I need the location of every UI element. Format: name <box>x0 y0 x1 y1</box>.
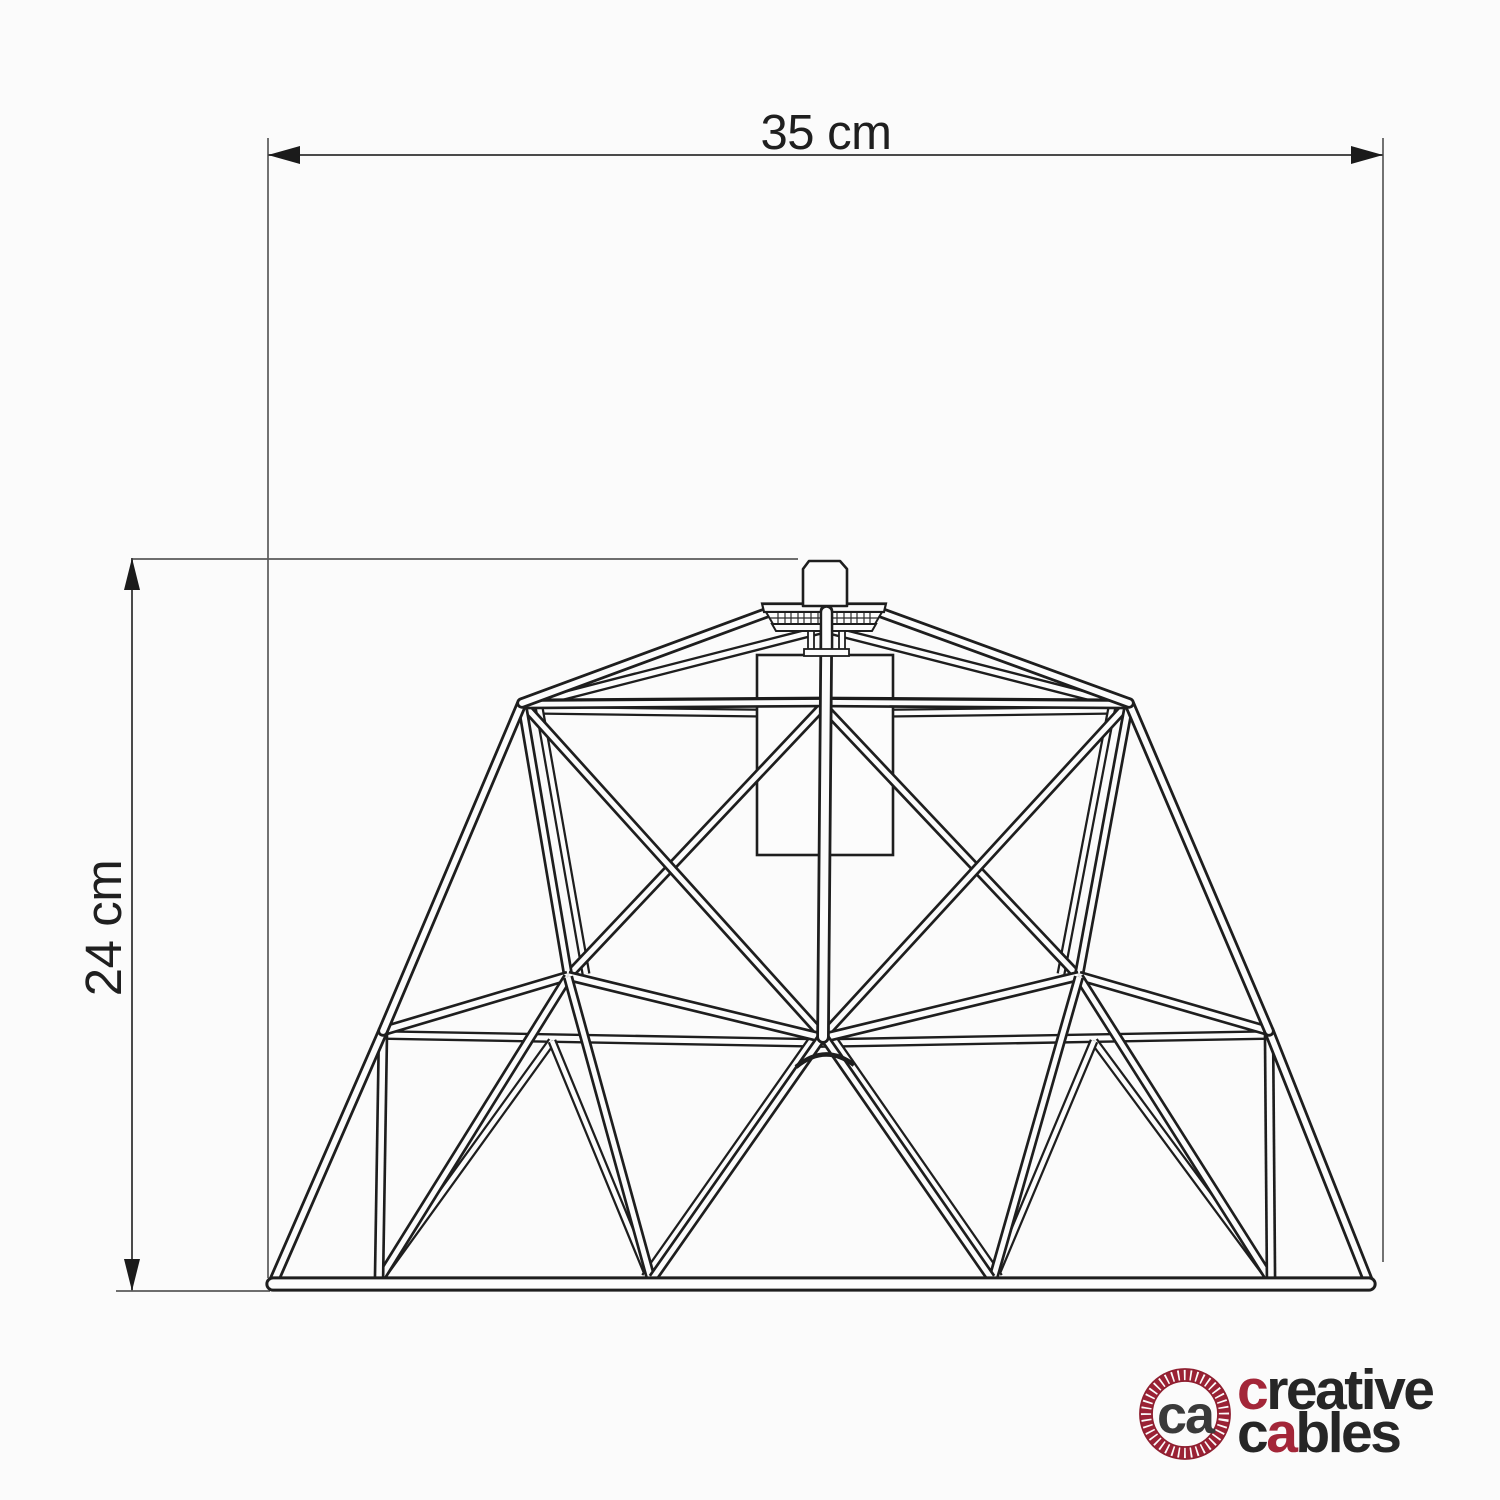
svg-text:cables: cables <box>1237 1401 1400 1465</box>
svg-text:ca: ca <box>1157 1385 1216 1445</box>
svg-text:24 cm: 24 cm <box>75 860 132 996</box>
svg-text:35 cm: 35 cm <box>761 106 892 160</box>
